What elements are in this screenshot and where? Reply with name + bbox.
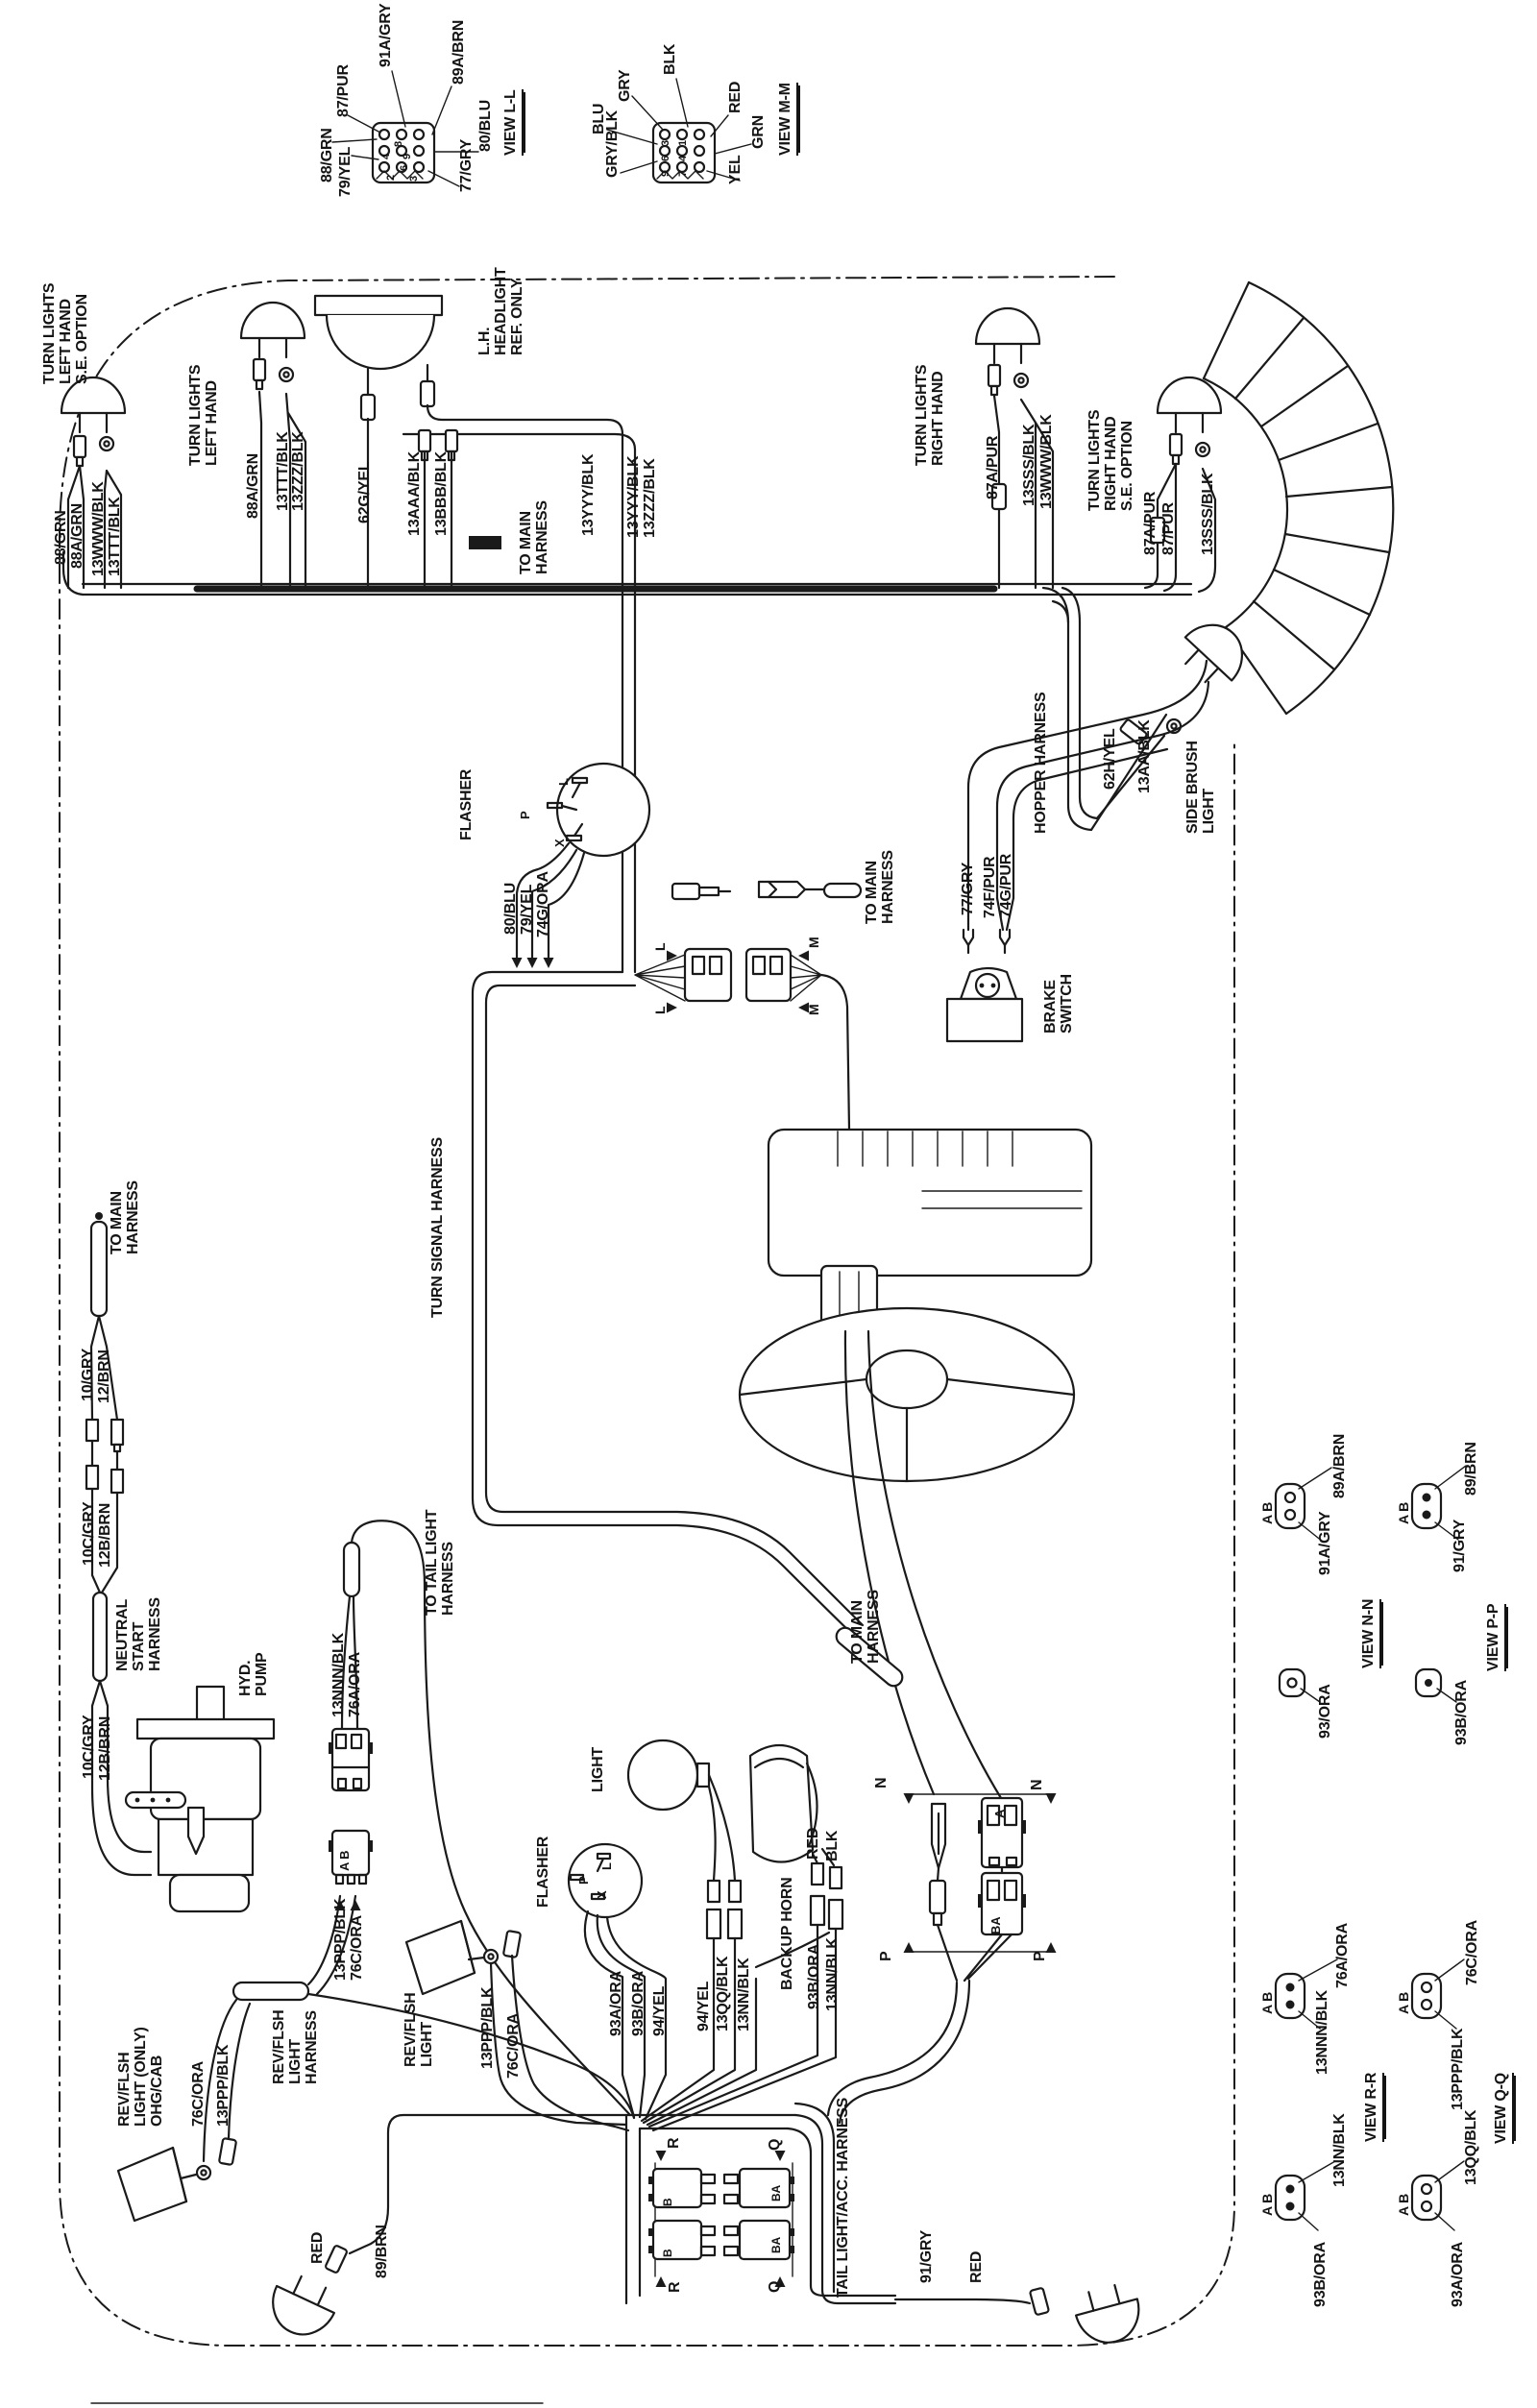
label-w-13sssblk: 13SSS/BLK: [1022, 425, 1038, 506]
label-totail: TO TAIL LIGHT HARNESS: [425, 1510, 457, 1616]
label-ll-91agry: 91A/GRY: [378, 4, 395, 67]
label-w-13qqblk: 13QQ/BLK: [716, 1957, 732, 2031]
label-light: LIGHT: [591, 1747, 607, 1792]
label-mm-pin7: 7: [678, 171, 690, 177]
label-view-ll: VIEW L-L: [503, 89, 524, 156]
label-view-qq: VIEW Q-Q: [1494, 2073, 1514, 2144]
label-ll-pin8: 8: [394, 141, 405, 147]
label-box-r2: R: [668, 2282, 684, 2293]
label-w-88grn: 88/GRN: [54, 510, 70, 565]
label-w-93bora: 93B/ORA: [631, 1971, 647, 2036]
label-mm-blk: BLK: [663, 44, 679, 75]
label-qq-ab2: A B: [1397, 2194, 1411, 2216]
label-w-89abrn2: 89A/BRN: [1332, 1434, 1349, 1498]
label-w-77gry: 77/GRY: [961, 863, 977, 915]
label-ll-pin6: 6: [400, 165, 411, 171]
label-mm-gry: GRY: [618, 70, 634, 102]
label-ll-pin9: 9: [403, 154, 414, 159]
label-w-13pppblk4: 13PPP/BLK: [1451, 2029, 1467, 2110]
label-w-10cgry: 10C/GRY: [82, 1502, 98, 1566]
label-box-b2: B: [662, 2250, 674, 2257]
label-w-76cora3: 76C/ORA: [506, 2013, 523, 2079]
label-lm-l2: L: [653, 1007, 668, 1014]
label-view-pp: VIEW P-P: [1486, 1604, 1506, 1671]
label-ll-89abrn: 89A/BRN: [451, 20, 468, 85]
label-mm-grn: GRN: [751, 115, 768, 149]
label-tomain3: TO MAIN HARNESS: [110, 1180, 142, 1254]
label-w-12bbrn2: 12B/BRN: [98, 1716, 114, 1781]
label-w-87apur2: 87A/PUR: [1143, 492, 1159, 555]
label-conn-a: A: [993, 1810, 1007, 1818]
label-rr-ab1: A B: [1260, 1992, 1275, 2014]
label-w-76cora: 76C/ORA: [350, 1915, 366, 1981]
label-box-r1: R: [667, 2138, 683, 2149]
label-hyd-pump: HYD. PUMP: [238, 1653, 271, 1696]
label-w-13nnnblk2: 13NNN/BLK: [1315, 1990, 1331, 2075]
label-tailharness: TAIL LIGHT/ACC. HARNESS: [836, 2098, 852, 2298]
label-w-62gyel: 62G/YEL: [357, 462, 374, 523]
label-ll-pin3: 3: [409, 176, 421, 182]
label-ll-88grn: 88/GRN: [320, 128, 336, 182]
label-ab1: A B: [338, 1851, 352, 1871]
label-n1: N: [874, 1778, 890, 1788]
label-w-red3: RED: [310, 2232, 327, 2264]
label-w-13sssblk2: 13SSS/BLK: [1201, 474, 1217, 555]
label-tl-lh-se: TURN LIGHTS LEFT HAND S.E. OPTION: [42, 283, 90, 384]
label-w-12bbrn: 12B/BRN: [98, 1503, 114, 1568]
label-w-13tttblk: 13TTT/BLK: [108, 497, 124, 576]
label-w-87pur: 87/PUR: [1161, 502, 1178, 555]
label-nn-ab: A B: [1260, 1502, 1275, 1524]
label-w-93bora2: 93B/ORA: [807, 1944, 823, 2009]
label-w-93aora2: 93A/ORA: [1451, 2242, 1467, 2307]
label-w-13wwwblk: 13WWW/BLK: [91, 481, 108, 576]
label-revflsh-only: REV/FLSH LIGHT (ONLY) OHG/CAB: [117, 2027, 165, 2127]
label-ll-pin4: 4: [381, 154, 393, 159]
label-pp-ab: A B: [1397, 1502, 1411, 1524]
label-flasher2: FLASHER: [536, 1836, 552, 1908]
label-w-93aora: 93A/ORA: [609, 1971, 625, 2036]
label-w-93bora4: 93B/ORA: [1313, 2242, 1330, 2307]
label-w-red: RED: [806, 1828, 822, 1860]
label-f1-l: L: [557, 778, 571, 786]
label-tl-rh-se: TURN LIGHTS RIGHT HAND S.E. OPTION: [1087, 410, 1135, 511]
label-mm-pin3: 3: [661, 140, 672, 146]
label-tsh: TURN SIGNAL HARNESS: [430, 1137, 447, 1318]
label-mm-pin4: 4: [678, 156, 690, 161]
label-ll-pin2: 2: [386, 175, 398, 181]
label-f1-x: X: [553, 839, 567, 847]
label-p1: P: [879, 1952, 895, 1961]
label-box-q1: Q: [768, 2139, 784, 2151]
label-mm-pin6: 6: [661, 156, 672, 161]
label-f2-p: P: [577, 1877, 591, 1885]
label-mm-gryblk: GRY/BLK: [605, 110, 622, 178]
label-ll-79yel: 79/YEL: [338, 147, 354, 197]
label-hopper-harness: HOPPER HARNESS: [1034, 693, 1050, 834]
label-f1-p: P: [519, 812, 532, 819]
label-w-13aablk: 13AA/BLK: [1137, 719, 1154, 793]
label-w-10gry: 10/GRY: [81, 1349, 97, 1401]
label-w-13nnnblk: 13NNN/BLK: [331, 1633, 348, 1717]
labels-layer: 88/GRN79/YEL87/PUR91A/GRY89A/BRN80/BLU77…: [0, 0, 1537, 2408]
label-w-blk: BLK: [825, 1831, 842, 1861]
label-w-13qqblk2: 13QQ/BLK: [1464, 2110, 1480, 2185]
label-w-88agrn2: 88A/GRN: [246, 453, 262, 519]
label-lm-m1: M: [807, 937, 821, 948]
label-lm-m2: M: [807, 1005, 821, 1015]
label-w-76cora4: 76C/ORA: [1465, 1920, 1481, 1985]
label-side-brush: SIDE BRUSH LIGHT: [1185, 741, 1218, 834]
label-w-87apur: 87A/PUR: [986, 436, 1002, 499]
label-lm-l1: L: [653, 943, 668, 951]
label-w-74gora: 74G/ORA: [536, 871, 552, 937]
label-w-13pppblk: 13PPP/BLK: [333, 1899, 350, 1981]
label-brake-switch: BRAKE SWITCH: [1043, 974, 1076, 1034]
label-p2: P: [1033, 1952, 1049, 1961]
label-w-76cora2: 76C/ORA: [191, 2061, 207, 2127]
label-w-94yel2: 94/YEL: [696, 1982, 713, 2031]
label-n2: N: [1030, 1780, 1046, 1790]
label-w-13nnblk3: 13NN/BLK: [1332, 2113, 1349, 2187]
label-w-13aaablk: 13AAA/BLK: [407, 451, 424, 536]
label-tl-lh: TURN LIGHTS LEFT HAND: [188, 365, 221, 466]
label-w-76aora: 76A/ORA: [348, 1652, 364, 1717]
label-conn-ba: BA: [989, 1917, 1003, 1934]
label-box-q2: Q: [768, 2281, 784, 2293]
label-w-79yel: 79/YEL: [520, 885, 536, 935]
label-w-13yyy-zzz: 13YYY/BLK 13ZZZ/BLK: [626, 456, 659, 538]
schematic-page: 88/GRN79/YEL87/PUR91A/GRY89A/BRN80/BLU77…: [0, 0, 1537, 2408]
label-mm-pin1: 1: [678, 140, 690, 146]
label-w-93ora: 93/ORA: [1318, 1684, 1334, 1739]
label-mm-yel: YEL: [728, 155, 744, 184]
label-w-91agry2: 91A/GRY: [1318, 1512, 1334, 1575]
label-box-ba2: BA: [770, 2237, 783, 2253]
label-w-13pppblk3: 13PPP/BLK: [480, 1987, 497, 2069]
label-ll-87pur: 87/PUR: [336, 64, 353, 117]
label-w-10cgry2: 10C/GRY: [82, 1715, 98, 1779]
label-tl-rh: TURN LIGHTS RIGHT HAND: [915, 365, 947, 466]
label-w-80blu: 80/BLU: [503, 883, 520, 935]
label-w-13nnblk: 13NN/BLK: [737, 1958, 753, 2031]
label-w-89brn2: 89/BRN: [1464, 1442, 1480, 1496]
label-revflsh-light: REV/FLSH LIGHT: [403, 1992, 436, 2067]
label-w-red2: RED: [969, 2251, 986, 2283]
label-view-nn: VIEW N-N: [1361, 1599, 1381, 1668]
label-view-mm: VIEW M-M: [778, 83, 798, 156]
label-w-93bora3: 93B/ORA: [1454, 1680, 1471, 1745]
label-w-62hyel: 62H/YEL: [1103, 728, 1119, 790]
label-w-89brn: 89/BRN: [375, 2225, 391, 2278]
label-w-13nnblk2: 13NN/BLK: [825, 1937, 842, 2011]
label-w-13wwwblk2: 13WWW/BLK: [1039, 414, 1056, 509]
label-w-74fpur: 74F/PUR: [983, 857, 999, 918]
label-w-13yyyblk: 13YYY/BLK: [581, 454, 598, 536]
label-neutral-start: NEUTRAL START HARNESS: [115, 1597, 163, 1671]
label-qq-ab1: A B: [1397, 1992, 1411, 2014]
label-box-ba1: BA: [770, 2185, 783, 2201]
label-box-b1: B: [662, 2199, 674, 2206]
label-f2-l: L: [600, 1862, 614, 1870]
label-tomain1: TO MAIN HARNESS: [519, 500, 551, 574]
label-rr-ab2: A B: [1260, 2194, 1275, 2216]
label-view-rr: VIEW R-R: [1364, 2073, 1384, 2142]
label-w-88agrn: 88A/GRN: [70, 503, 86, 569]
label-backup-horn: BACKUP HORN: [780, 1877, 796, 1990]
label-w-13pppblk2: 13PPP/BLK: [216, 2045, 232, 2127]
label-mm-red: RED: [728, 82, 744, 113]
label-w-91gry: 91/GRY: [919, 2230, 936, 2283]
label-w-91gry2: 91/GRY: [1452, 1520, 1469, 1572]
label-w-74gpur: 74G/PUR: [999, 854, 1015, 918]
label-w-76aora2: 76A/ORA: [1335, 1923, 1352, 1988]
label-w-13bbbblk: 13BBB/BLK: [434, 451, 451, 536]
label-ll-80blu: 80/BLU: [478, 100, 495, 152]
label-revflsh-harness: REV/FLSH LIGHT HARNESS: [272, 2009, 320, 2084]
label-lh-headlight: L.H. HEADLIGHT REF. ONLY: [477, 267, 525, 355]
label-mm-pin9: 9: [661, 171, 672, 177]
label-w-94yel: 94/YEL: [652, 1986, 669, 2036]
label-w-12brn: 12/BRN: [97, 1350, 113, 1403]
label-tomain2: TO MAIN HARNESS: [865, 850, 897, 924]
label-f2-x: X: [596, 1891, 609, 1899]
label-flasher1: FLASHER: [459, 769, 476, 840]
label-ll-77gry: 77/GRY: [459, 139, 476, 192]
label-tomain4: TO MAIN HARNESS: [850, 1590, 883, 1664]
label-w-13zzzblk: 13ZZZ/BLK: [291, 431, 307, 511]
